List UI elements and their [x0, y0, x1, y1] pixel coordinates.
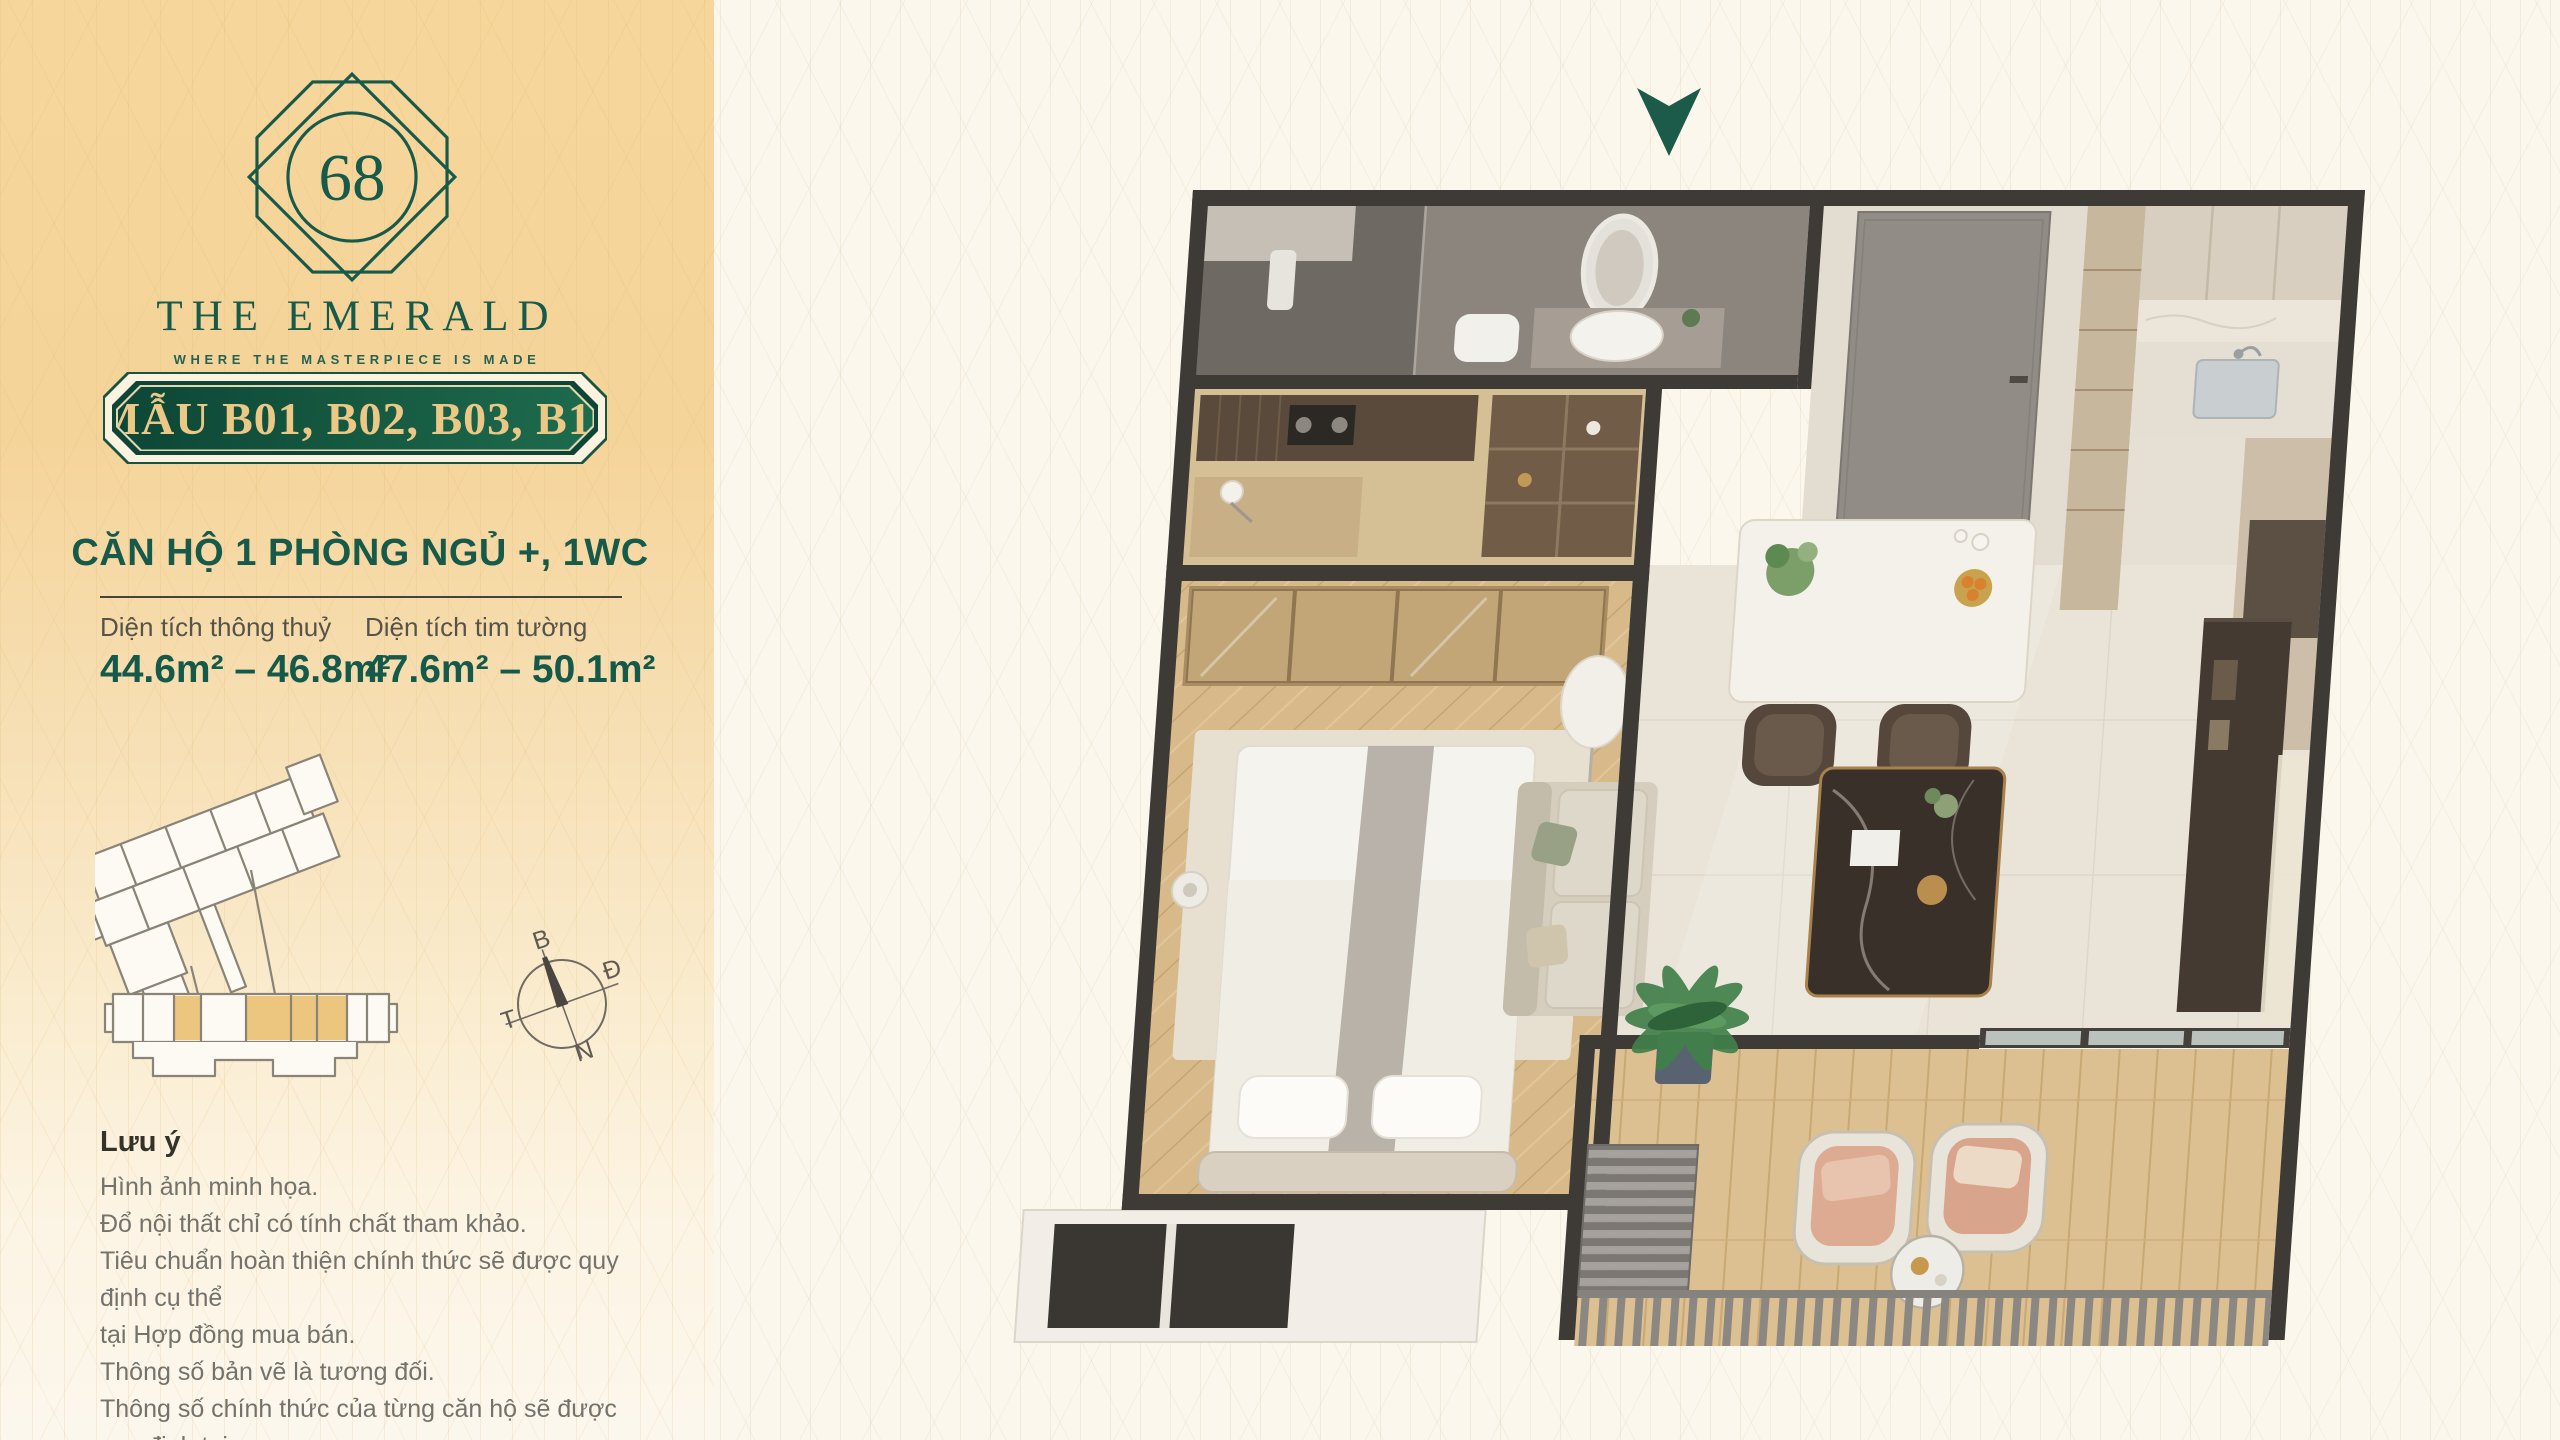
compass-north-label: B	[529, 928, 554, 956]
note-line: Đổ nội thất chỉ có tính chất tham khảo.	[100, 1206, 660, 1243]
sofa	[1502, 782, 1658, 1016]
floor-plan-render	[1000, 50, 2430, 1390]
area-label-gross: Diện tích tim tường	[365, 612, 587, 643]
area-value-gross: 47.6m² – 50.1m²	[365, 648, 656, 692]
disclaimer-notes: Lưu ý Hình ảnh minh họa. Đổ nội thất chỉ…	[100, 1126, 660, 1440]
area-value-net: 44.6m² – 46.8m²	[100, 648, 391, 692]
coffee-table	[1806, 768, 2006, 996]
compass-icon: B Đ T N	[500, 928, 630, 1078]
unit-model-label: MẪU B01, B02, B03, B11	[97, 392, 614, 445]
brand-tagline: WHERE THE MASTERPIECE IS MADE	[57, 352, 657, 367]
note-line: Thông số chính thức của từng căn hộ sẽ đ…	[100, 1391, 660, 1440]
brochure-page: 68 THE EMERALD WHERE THE MASTERPIECE IS …	[0, 0, 2560, 1440]
railing-slats	[1574, 1298, 2271, 1346]
bed	[1197, 746, 1546, 1192]
note-line: Tiêu chuẩn hoàn thiện chính thức sẽ được…	[100, 1243, 660, 1317]
note-line: Hình ảnh minh họa.	[100, 1169, 660, 1206]
note-line: tại Hợp đồng mua bán.	[100, 1317, 660, 1354]
entrance-arrow-icon	[1637, 88, 1701, 156]
balcony-glass-door	[1979, 1028, 2290, 1048]
ac-louver	[1578, 1145, 1698, 1295]
site-keyplan-diagram	[95, 742, 407, 1082]
dining-table	[1728, 520, 2037, 702]
compass-east-label: Đ	[599, 953, 625, 985]
info-sidebar: 68 THE EMERALD WHERE THE MASTERPIECE IS …	[0, 0, 714, 1440]
divider-line	[100, 596, 622, 598]
brand-name: THE EMERALD	[57, 292, 657, 341]
logo-number: 68	[318, 140, 385, 215]
emerald-gem-logo-icon: 68	[247, 72, 457, 282]
unit-type-title: CĂN HỘ 1 PHÒNG NGỦ +, 1WC	[60, 532, 660, 575]
note-line: Thông số bản vẽ là tương đối.	[100, 1354, 660, 1391]
area-label-net: Diện tích thông thuỷ	[100, 612, 331, 643]
railing-top	[1578, 1290, 2273, 1298]
exterior-wall-face	[1014, 1210, 1485, 1342]
compass-south-label: N	[571, 1035, 597, 1067]
notes-title: Lưu ý	[100, 1126, 660, 1159]
unit-model-badge: MẪU B01, B02, B03, B11	[103, 372, 607, 464]
